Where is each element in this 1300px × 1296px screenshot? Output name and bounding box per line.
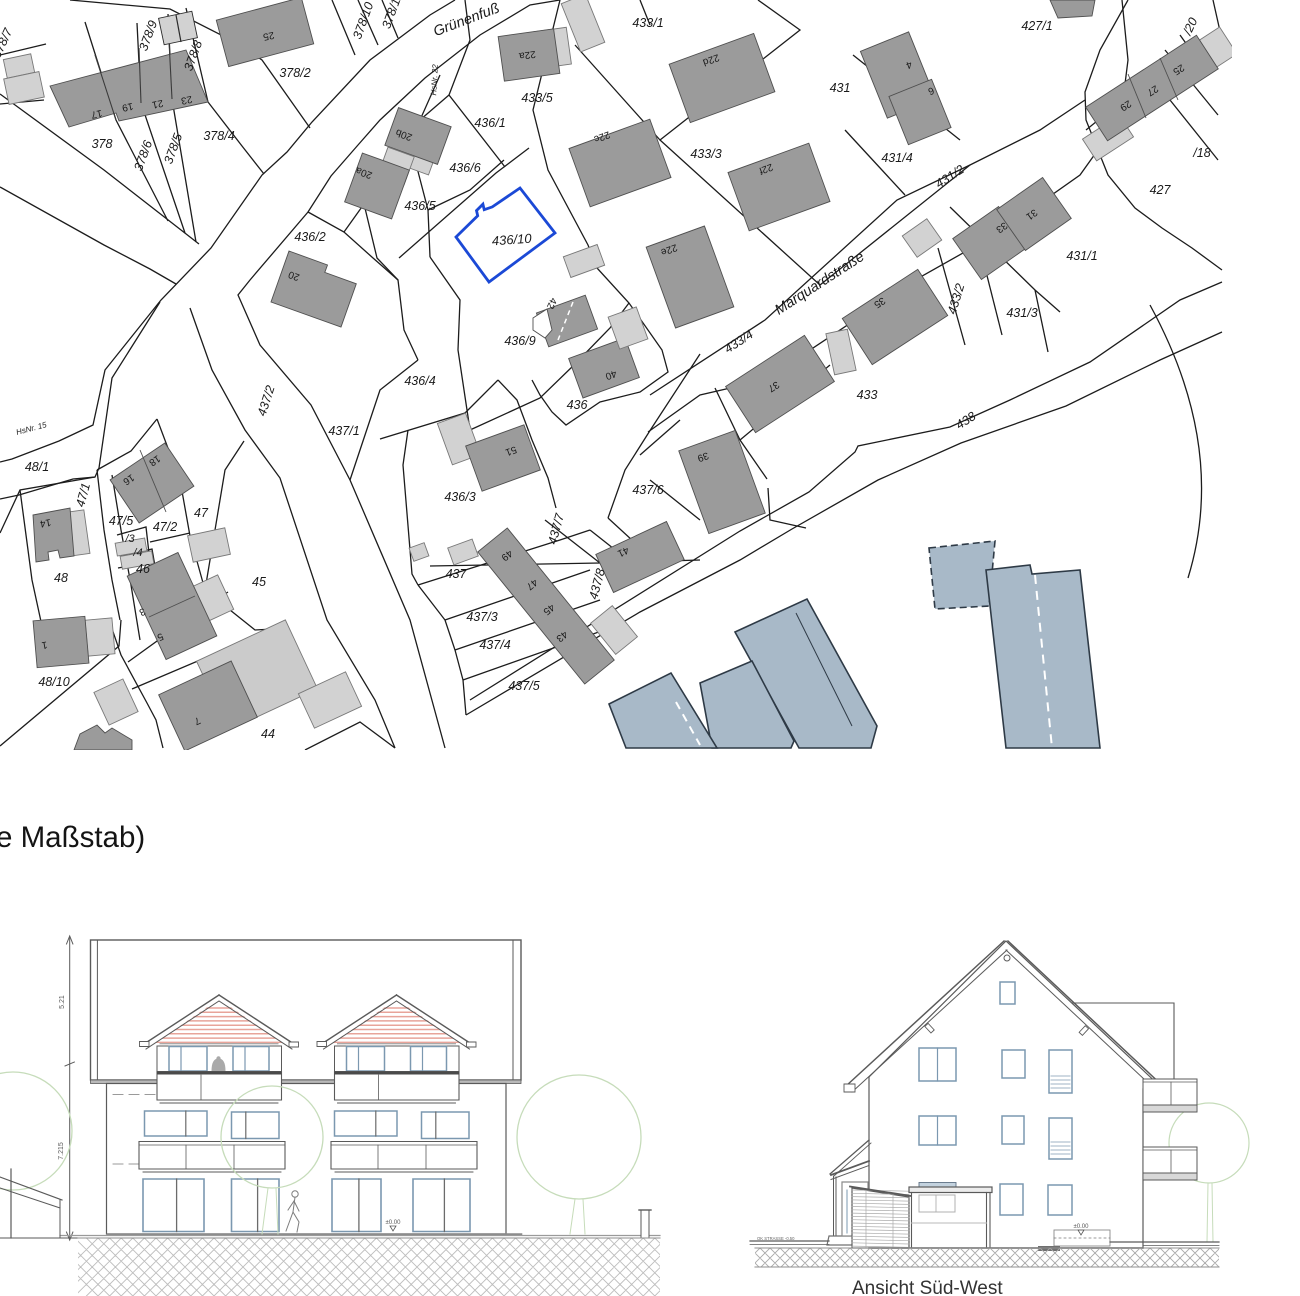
svg-text:438: 438 bbox=[953, 409, 978, 432]
svg-text:±0.00: ±0.00 bbox=[1074, 1224, 1090, 1230]
svg-text:378/11: 378/11 bbox=[379, 0, 405, 31]
svg-text:436/1: 436/1 bbox=[474, 116, 505, 130]
svg-text:HsNr. 22: HsNr. 22 bbox=[429, 63, 440, 95]
svg-text:436/5: 436/5 bbox=[404, 199, 435, 213]
svg-text:433/5: 433/5 bbox=[521, 91, 552, 105]
svg-text:/4: /4 bbox=[132, 547, 142, 559]
svg-text:436/10: 436/10 bbox=[491, 231, 532, 249]
svg-text:436: 436 bbox=[567, 398, 588, 412]
svg-text:437/5: 437/5 bbox=[508, 679, 539, 693]
svg-text:437/7: 437/7 bbox=[545, 511, 567, 546]
svg-text:433: 433 bbox=[857, 388, 878, 402]
svg-text:436/3: 436/3 bbox=[444, 490, 475, 504]
svg-text:431/2: 431/2 bbox=[933, 162, 967, 191]
svg-text:427: 427 bbox=[1150, 183, 1172, 197]
svg-text:48/10: 48/10 bbox=[38, 675, 69, 689]
svg-text:378: 378 bbox=[92, 137, 113, 151]
svg-text:433/4: 433/4 bbox=[722, 327, 756, 356]
svg-text:378/10: 378/10 bbox=[350, 0, 376, 41]
svg-text:/18: /18 bbox=[1192, 146, 1210, 160]
svg-text:431/3: 431/3 bbox=[1006, 306, 1037, 320]
svg-text:378/9: 378/9 bbox=[136, 18, 160, 52]
svg-text:e Maßstab): e Maßstab) bbox=[0, 821, 145, 854]
svg-text:437/1: 437/1 bbox=[328, 424, 359, 438]
svg-text:437/2: 437/2 bbox=[255, 384, 278, 418]
svg-text:437/6: 437/6 bbox=[632, 483, 663, 497]
svg-text:Marquardstraße: Marquardstraße bbox=[772, 249, 867, 319]
svg-text:378/2: 378/2 bbox=[279, 66, 310, 80]
svg-text:7.215: 7.215 bbox=[58, 1142, 65, 1160]
svg-text:OK STRASSE -0.50: OK STRASSE -0.50 bbox=[757, 1236, 795, 1241]
svg-text:47/2: 47/2 bbox=[153, 520, 177, 534]
svg-text:378/5: 378/5 bbox=[161, 131, 185, 165]
svg-text:436/4: 436/4 bbox=[404, 374, 435, 388]
svg-text:436/9: 436/9 bbox=[504, 334, 535, 348]
svg-text:5.21: 5.21 bbox=[59, 995, 66, 1009]
svg-text:47/5: 47/5 bbox=[109, 514, 133, 528]
svg-text:433/3: 433/3 bbox=[690, 147, 721, 161]
svg-text:431/4: 431/4 bbox=[881, 151, 912, 165]
svg-text:431: 431 bbox=[830, 81, 851, 95]
svg-text:378/7: 378/7 bbox=[0, 25, 16, 60]
svg-text:437/8: 437/8 bbox=[586, 567, 608, 601]
svg-text:436/2: 436/2 bbox=[294, 230, 325, 244]
svg-text:48/1: 48/1 bbox=[25, 460, 49, 474]
svg-text:HsNr. 15: HsNr. 15 bbox=[15, 420, 48, 437]
svg-text:44: 44 bbox=[261, 727, 275, 741]
svg-text:48: 48 bbox=[54, 571, 68, 585]
svg-text:378/6: 378/6 bbox=[131, 138, 155, 172]
svg-text:Grünenfuß: Grünenfuß bbox=[431, 0, 502, 40]
svg-text:47/1: 47/1 bbox=[73, 481, 93, 508]
svg-text:Ansicht Süd-West: Ansicht Süd-West bbox=[852, 1278, 1003, 1296]
svg-text:437: 437 bbox=[446, 567, 468, 581]
svg-text:±0.00: ±0.00 bbox=[386, 1220, 402, 1226]
svg-text:45: 45 bbox=[252, 575, 266, 589]
svg-text:437/3: 437/3 bbox=[466, 610, 497, 624]
svg-text:47: 47 bbox=[194, 506, 209, 520]
svg-text:378/8: 378/8 bbox=[181, 38, 205, 72]
svg-text:431/1: 431/1 bbox=[1066, 249, 1097, 263]
svg-text:437/4: 437/4 bbox=[479, 638, 510, 652]
svg-text:46: 46 bbox=[136, 562, 150, 576]
svg-text:433/1: 433/1 bbox=[632, 16, 663, 30]
svg-text:378/4: 378/4 bbox=[203, 129, 234, 143]
svg-text:/3: /3 bbox=[124, 533, 135, 545]
svg-text:436/6: 436/6 bbox=[449, 161, 480, 175]
svg-text:/20: /20 bbox=[1180, 15, 1200, 38]
svg-text:427/1: 427/1 bbox=[1021, 19, 1052, 33]
